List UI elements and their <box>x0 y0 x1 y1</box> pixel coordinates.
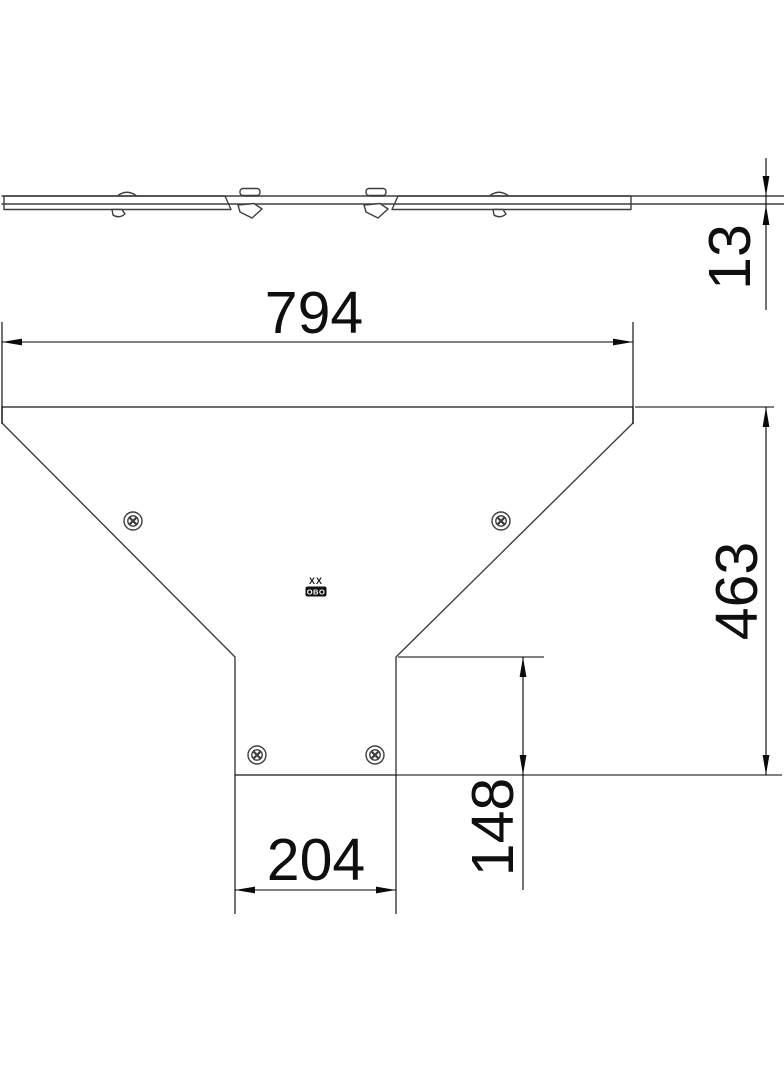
fastening-clip-right <box>364 189 388 219</box>
front-view: XX OBO <box>2 407 633 775</box>
cover-bump-right <box>490 192 508 195</box>
screw-head-top-right <box>492 512 510 530</box>
screw-head-bottom-left <box>248 746 266 764</box>
side-profile-view <box>2 189 784 219</box>
top-width-label: 794 <box>265 280 363 346</box>
cover-hook-right <box>493 210 506 217</box>
overall-height-label: 463 <box>704 542 770 640</box>
stamp-top-text: XX <box>309 576 323 586</box>
thickness-label: 13 <box>697 224 763 290</box>
cover-bump-left <box>118 192 136 195</box>
cover-segment-right <box>392 196 631 210</box>
neck-height-label: 148 <box>460 778 526 876</box>
technical-drawing-canvas: XX OBO <box>0 0 784 1066</box>
fastening-clip-left <box>238 189 262 219</box>
cover-hook-left <box>112 210 125 217</box>
cover-segment-left <box>4 196 231 210</box>
technical-drawing-page: XX OBO <box>0 0 784 1066</box>
screw-head-bottom-right <box>366 746 384 764</box>
screw-head-top-left <box>124 512 142 530</box>
stamp-box-text: OBO <box>307 588 326 597</box>
neck-width-label: 204 <box>267 827 365 893</box>
thickness-dimension <box>763 158 770 310</box>
